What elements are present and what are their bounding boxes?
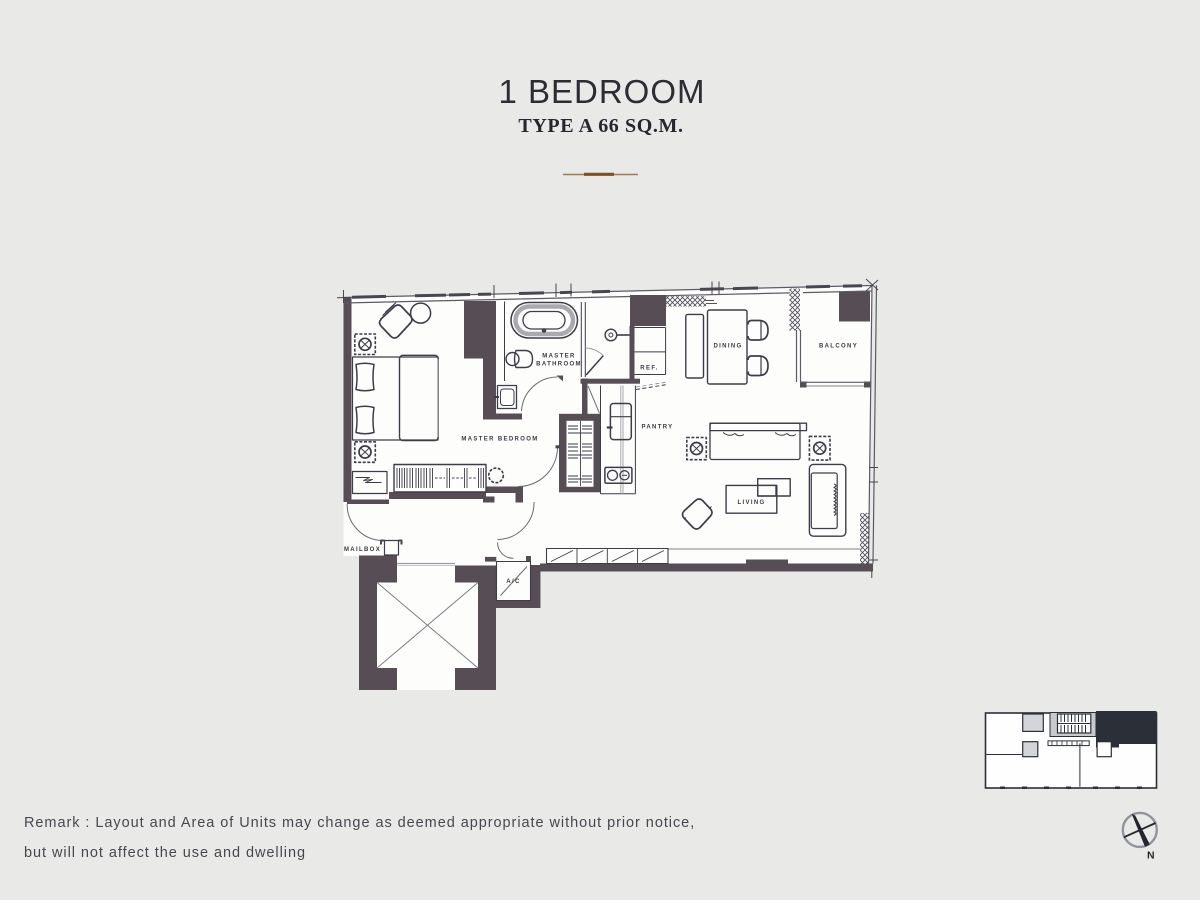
svg-text:MAILBOX: MAILBOX [344,547,381,553]
svg-text:BATHROOM: BATHROOM [536,362,582,368]
svg-text:N: N [1147,850,1155,862]
svg-text:LIVING: LIVING [737,500,765,506]
svg-text:PANTRY: PANTRY [641,425,673,431]
svg-text:MASTER BEDROOM: MASTER BEDROOM [461,437,538,443]
svg-text:A/C: A/C [506,579,520,585]
svg-text:DINING: DINING [713,344,742,350]
svg-text:BALCONY: BALCONY [819,344,858,350]
svg-text:REF.: REF. [640,366,658,372]
svg-text:MASTER: MASTER [542,354,575,360]
